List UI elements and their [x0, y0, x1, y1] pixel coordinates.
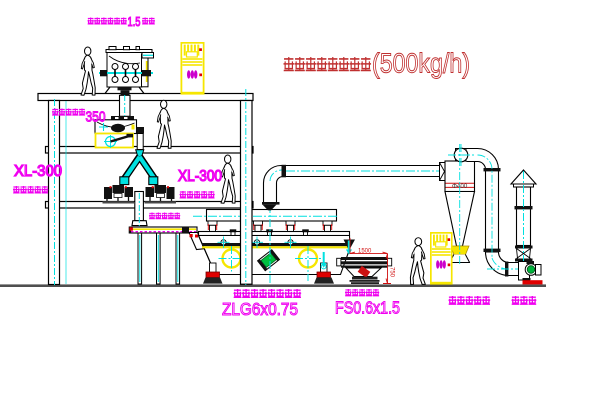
svg-text:(500kg/h): (500kg/h): [372, 48, 470, 79]
svg-text:1.5: 1.5: [128, 14, 141, 29]
svg-text:XL-300: XL-300: [14, 163, 62, 180]
svg-text:750: 750: [389, 267, 395, 278]
svg-text:350: 350: [86, 109, 106, 126]
svg-text:XL-300: XL-300: [178, 168, 222, 185]
svg-text:1500: 1500: [358, 249, 372, 255]
svg-text:FS0.6x1.5: FS0.6x1.5: [335, 298, 400, 318]
svg-text:ZLG6x0.75: ZLG6x0.75: [222, 299, 298, 319]
